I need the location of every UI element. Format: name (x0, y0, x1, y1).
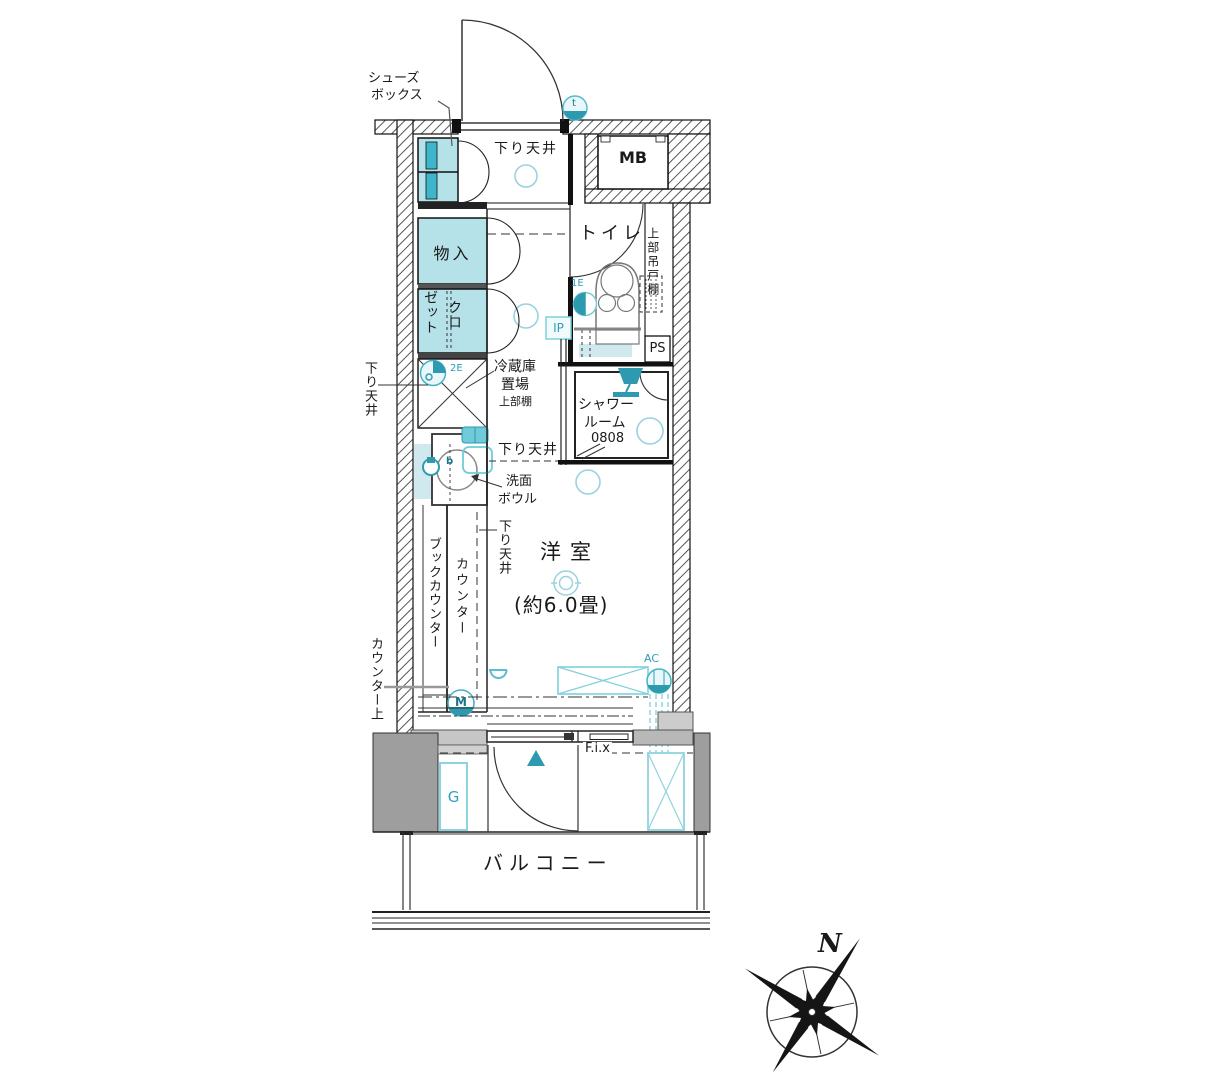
fridge-label-line1: 冷蔵庫 (494, 359, 536, 375)
shower-label-line2: ルーム (584, 415, 626, 431)
shower-label-line3: 0808 (591, 432, 624, 447)
paper-holder (574, 293, 597, 316)
shoe-box-label-line2: ボックス (371, 89, 423, 104)
shower-label-line1: シャワー (578, 397, 634, 413)
balcony-label: バルコニー (483, 852, 613, 875)
mark-2e: 2E (450, 363, 463, 375)
book-counter-label: ブックカウンター (425, 537, 440, 649)
compass-rose (706, 895, 927, 1086)
counter-top-label: カウンター上 (367, 637, 382, 721)
floor-plan: シューズ ボックス 下り天井 MB トイレ 上部吊戸棚 PS 物入 ゼット クロ… (0, 0, 1209, 1086)
balcony (373, 733, 710, 832)
meter-box-label: MB (598, 149, 668, 167)
mark-1e: 1E (571, 278, 584, 290)
wash-bowl-label-line1: 洗面 (506, 475, 532, 490)
compass-north-label: N (818, 930, 842, 960)
mark-ip: IP (546, 322, 571, 336)
mark-b: b (446, 456, 453, 468)
shoe-box-label-line1: シューズ (368, 72, 419, 87)
mark-m: M (449, 696, 473, 710)
fridge-label-line3: 上部棚 (499, 396, 532, 409)
mark-t: t (572, 98, 576, 110)
pipe-space-label: PS (645, 342, 670, 357)
closets (418, 218, 520, 359)
room-name-label: 洋室 (540, 540, 600, 564)
fix-window-label: F.i.x (583, 742, 612, 757)
mark-g: G (440, 789, 467, 806)
counter-label: カウンター (452, 557, 467, 637)
lowered-ceiling-room: 下り天井 (495, 519, 510, 575)
storage-label: 物入 (418, 245, 487, 263)
mark-ac: AC (644, 653, 659, 666)
upper-cabinet-label: 上部吊戸棚 (645, 227, 659, 297)
closet-label-zetto: ゼット (422, 290, 438, 335)
lowered-ceiling-wash: 下り天井 (498, 442, 558, 458)
fridge-label-line2: 置場 (501, 377, 529, 393)
room-size-label: (約6.0畳) (514, 594, 608, 617)
lowered-ceiling-left: 下り天井 (361, 361, 376, 417)
wash-bowl-label-line2: ボウル (498, 493, 537, 508)
closet-label-kuro: クロ (446, 300, 462, 330)
lowered-ceiling-entrance: 下り天井 (494, 141, 558, 157)
entrance-door (452, 20, 569, 133)
toilet-label: トイレ (579, 224, 645, 245)
balcony-railing (372, 831, 710, 929)
